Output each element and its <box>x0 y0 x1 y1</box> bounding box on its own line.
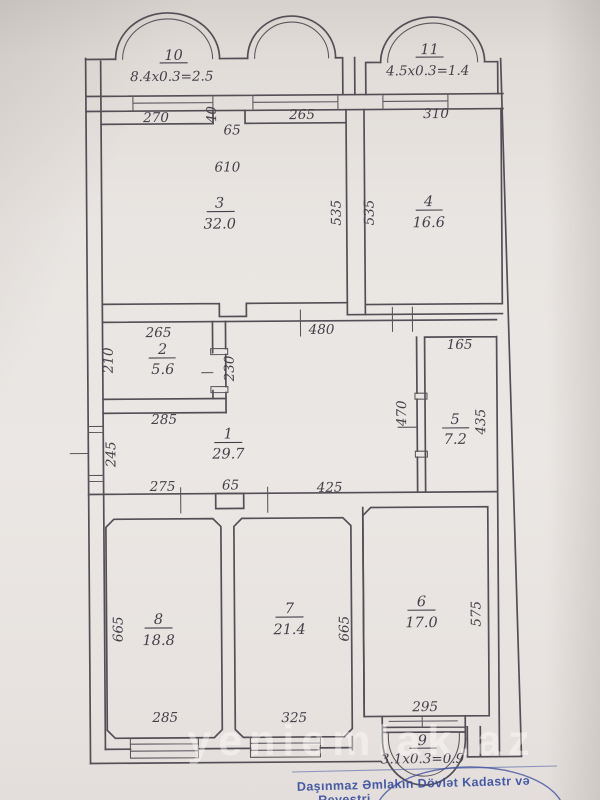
dimension-label: 165 <box>447 337 473 353</box>
room-area: 32.0 <box>204 216 236 232</box>
room-number: 1 <box>224 426 233 442</box>
balcony-formula: 8.4x0.3=2.5 <box>130 69 213 86</box>
room-label-6: 6 17.0 <box>405 594 438 631</box>
dimension-label: 270 <box>142 110 169 126</box>
balcony-label-11: 11 4.5x0.3=1.4 <box>385 42 470 80</box>
dimension-label: 425 <box>316 480 343 496</box>
room-number: 3 <box>215 196 224 212</box>
dimension-label: 665 <box>337 616 353 642</box>
balcony-formula: 4.5x0.3=1.4 <box>385 63 469 80</box>
room-label-4: 4 16.6 <box>412 194 445 231</box>
room-number: 7 <box>285 601 295 617</box>
watermark-text: yeniemlak.az <box>187 717 536 765</box>
dimension-label: 285 <box>150 412 177 428</box>
dimension-label: 275 <box>149 479 176 495</box>
room-area: 7.2 <box>444 432 467 448</box>
dimension-label: 245 <box>103 441 119 468</box>
dimension-label: 230 <box>222 355 238 382</box>
dimension-label: 535 <box>329 200 345 226</box>
room-area: 29.7 <box>211 446 245 462</box>
floor-plan-photo: 10 8.4x0.3=2.5 11 4.5x0.3=1.4 9 3.1x0.3=… <box>0 0 600 800</box>
dimension-label: 470 <box>394 400 410 427</box>
room-label-1: 1 29.7 <box>211 426 245 462</box>
room-area: 16.6 <box>413 215 445 231</box>
room-number: 8 <box>154 612 163 628</box>
dimension-label: 665 <box>111 616 127 642</box>
room-number: 4 <box>423 194 433 210</box>
balcony-number: 11 <box>420 42 439 58</box>
room-area: 18.8 <box>142 633 174 649</box>
room-area: 5.6 <box>151 362 174 378</box>
dimension-label: 65 <box>223 122 240 138</box>
room-area: 21.4 <box>272 622 305 638</box>
wall-detail-lines <box>67 17 482 779</box>
stamp-text-line2: Reyestri <box>318 792 371 800</box>
room-label-2: 2 5.6 <box>151 342 174 378</box>
dimension-label: 575 <box>468 601 484 627</box>
dimension-label: 40 <box>204 106 220 125</box>
registry-stamp: Daşınmaz Əmlakın Dövlət Kadastr və Reyes… <box>292 766 564 800</box>
room-label-3: 3 32.0 <box>203 195 236 232</box>
dimension-label: 265 <box>288 107 315 123</box>
room-label-8: 8 18.8 <box>142 612 175 649</box>
dimension-label: 265 <box>145 325 172 341</box>
dimension-label: 610 <box>214 159 240 175</box>
dimension-label: 480 <box>308 322 335 338</box>
wall-lines <box>85 10 521 787</box>
dimension-label: 535 <box>362 200 378 226</box>
floor-plan-image: 10 8.4x0.3=2.5 11 4.5x0.3=1.4 9 3.1x0.3=… <box>0 0 600 800</box>
dimension-label: 310 <box>423 106 449 122</box>
room-number: 5 <box>450 412 459 428</box>
stamp-text-line1: Daşınmaz Əmlakın Dövlət Kadastr və <box>297 774 530 794</box>
balcony-number: 10 <box>164 48 183 64</box>
room-number: 2 <box>157 342 167 358</box>
fraction-bars <box>141 57 472 750</box>
balcony-label-10: 10 8.4x0.3=2.5 <box>130 48 214 86</box>
dimension-label: 435 <box>473 409 489 436</box>
dimension-label: 210 <box>101 347 117 374</box>
room-number: 6 <box>417 594 426 610</box>
room-label-7: 7 21.4 <box>272 601 306 638</box>
room-area: 17.0 <box>405 615 437 631</box>
room-label-5: 5 7.2 <box>444 412 467 448</box>
dimension-label: 65 <box>222 477 239 493</box>
dimension-label: 285 <box>151 710 178 726</box>
dimension-label: 295 <box>411 699 438 715</box>
